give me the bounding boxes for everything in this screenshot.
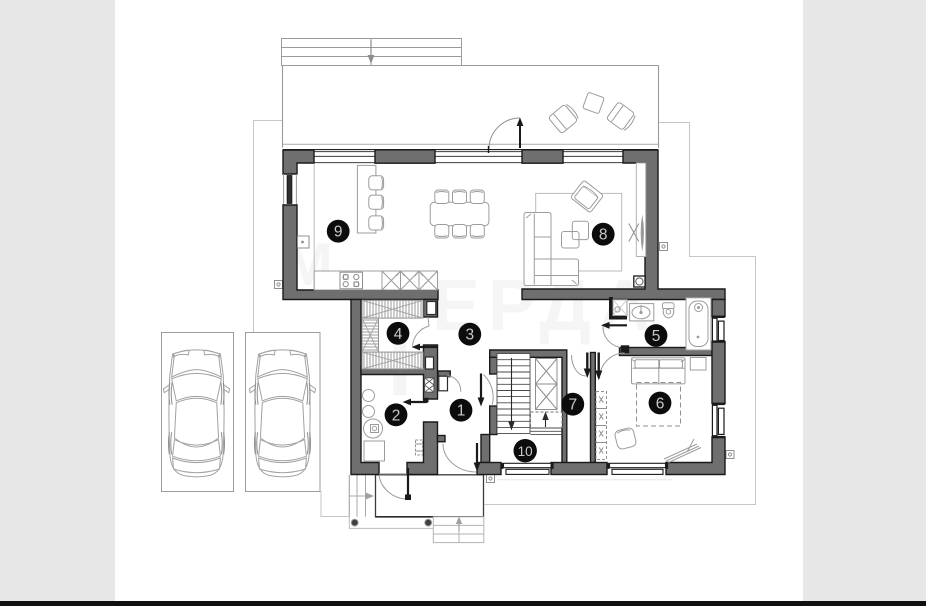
svg-text:3: 3 <box>465 327 474 344</box>
svg-text:1: 1 <box>457 403 466 420</box>
svg-text:2: 2 <box>392 407 401 424</box>
svg-text:5: 5 <box>652 328 661 345</box>
svg-text:8: 8 <box>599 227 608 244</box>
svg-text:9: 9 <box>334 224 343 241</box>
svg-text:10: 10 <box>518 444 533 459</box>
svg-text:6: 6 <box>656 396 665 413</box>
svg-text:7: 7 <box>568 397 577 414</box>
svg-text:4: 4 <box>394 326 403 343</box>
